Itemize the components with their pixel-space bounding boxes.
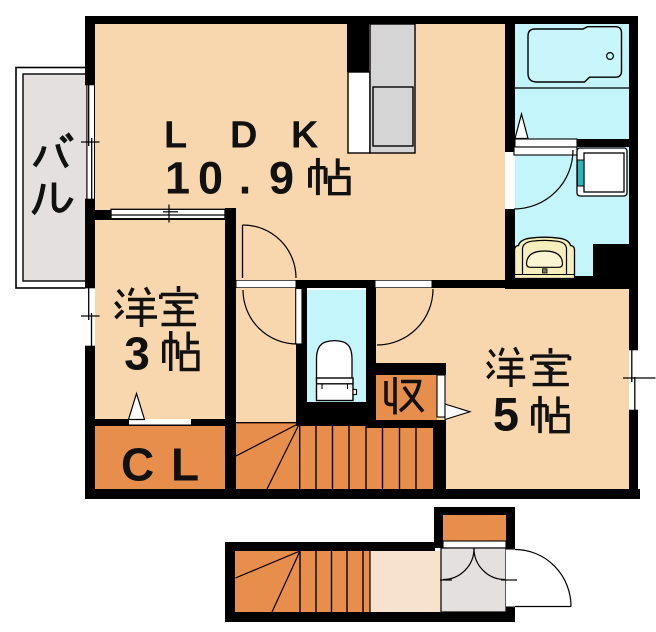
svg-text:1: 1 bbox=[165, 153, 190, 204]
svg-text:.: . bbox=[239, 153, 252, 204]
svg-text:C: C bbox=[121, 439, 154, 491]
svg-text:5: 5 bbox=[493, 388, 519, 441]
svg-text:9: 9 bbox=[269, 153, 294, 204]
svg-text:3: 3 bbox=[124, 328, 150, 380]
svg-text:D: D bbox=[230, 115, 257, 157]
svg-text:L: L bbox=[164, 115, 187, 157]
svg-text:L: L bbox=[171, 439, 199, 491]
svg-text:0: 0 bbox=[198, 153, 223, 204]
svg-text:K: K bbox=[291, 115, 319, 157]
